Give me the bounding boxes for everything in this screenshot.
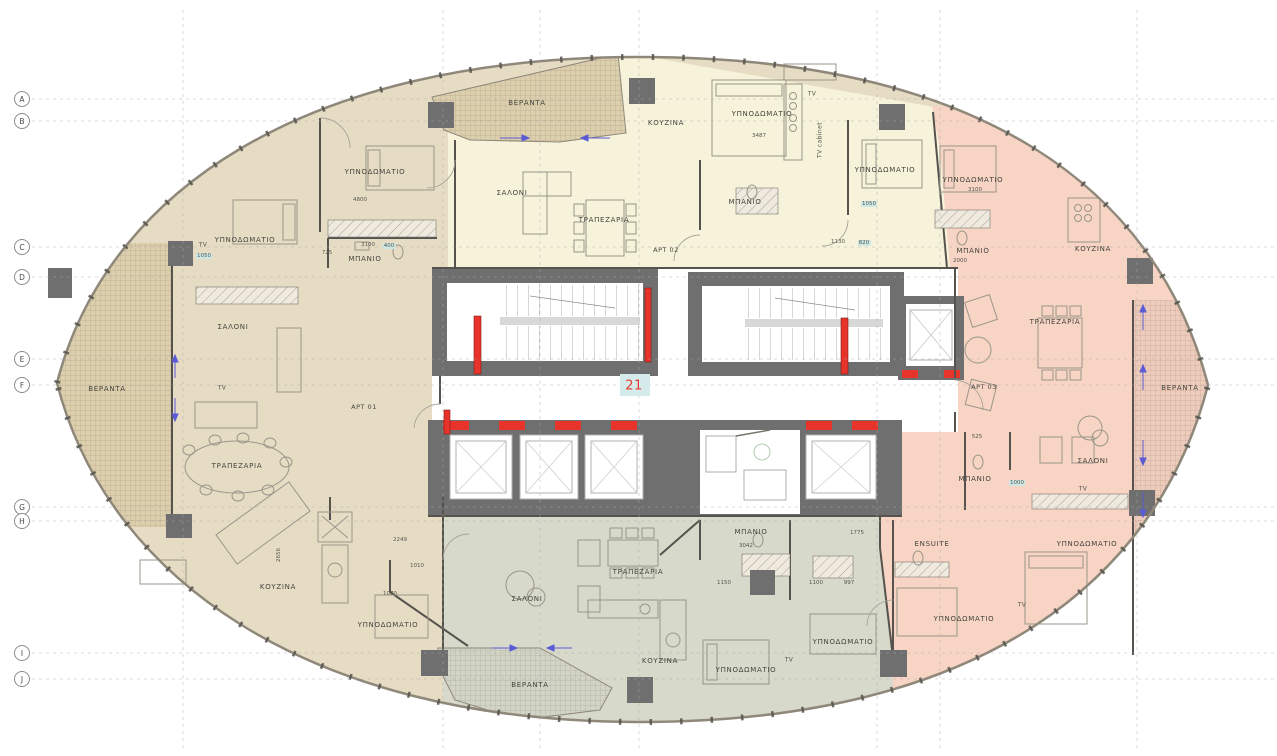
stair-2-lower-flight	[745, 328, 883, 360]
room-label-bedroom: ΥΠΝΟΔΩΜΑΤΙΟ	[345, 168, 406, 176]
room-label-dining: ΤΡΑΠΕΖΑΡΙΑ	[579, 216, 630, 224]
room-label-dining: ΤΡΑΠΕΖΑΡΙΑ	[1030, 318, 1081, 326]
room-label-dining: ΤΡΑΠΕΖΑΡΙΑ	[613, 568, 664, 576]
room-label-veranda: ΒΕΡΑΝΤΑ	[1161, 384, 1198, 392]
room-label-bath: ΜΠΑΝΙΟ	[958, 475, 991, 483]
central-core	[414, 268, 983, 516]
unit-label-apt03: APT 03	[971, 383, 997, 391]
room-label-veranda: ΒΕΡΑΝΤΑ	[508, 99, 545, 107]
tv-label: TV	[785, 657, 794, 664]
dim-label: 1775	[850, 530, 864, 536]
dim-label: 2000	[953, 258, 967, 264]
stair-1-upper-flight	[500, 285, 640, 316]
floor-number: 21	[625, 379, 643, 394]
grid-row-label: I	[21, 649, 23, 658]
room-label-bedroom: ΥΠΝΟΔΩΜΑΤΙΟ	[934, 615, 995, 623]
room-label-dining: ΤΡΑΠΕΖΑΡΙΑ	[212, 462, 263, 470]
dim-label: 1050	[196, 253, 212, 259]
grid-row-label: E	[20, 355, 25, 364]
dim-label: 2249	[393, 537, 407, 543]
room-label-bedroom: ΥΠΝΟΔΩΜΑΤΙΟ	[716, 666, 777, 674]
dim-label: 1100	[809, 580, 823, 586]
grid-row-label: D	[19, 273, 25, 282]
room-label-bedroom: ΥΠΝΟΔΩΜΑΤΙΟ	[358, 621, 419, 629]
grid-row-label: F	[20, 381, 24, 390]
grid-row-label: A	[19, 95, 25, 104]
room-label-living: ΣΑΛΟΝΙ	[511, 595, 542, 603]
dim-label: 725	[322, 250, 333, 256]
unit-label-apt02: APT 02	[653, 246, 679, 254]
room-label-ensuite: ENSUITE	[915, 540, 950, 548]
grid-row-label: C	[19, 243, 24, 252]
dim-label: 3100	[361, 242, 375, 248]
room-label-bedroom: ΥΠΝΟΔΩΜΑΤΙΟ	[1057, 540, 1118, 548]
dim-label: 3100	[968, 187, 982, 193]
dim-label: 400	[383, 243, 396, 249]
dim-label: 997	[844, 580, 855, 586]
unit-label-apt01: APT 01	[351, 403, 377, 411]
room-label-living: ΣΑΛΟΝΙ	[217, 323, 248, 331]
room-label-veranda: ΒΕΡΑΝΤΑ	[511, 681, 548, 689]
room-label-kitchen: ΚΟΥΖΙΝΑ	[1075, 245, 1111, 253]
dim-label: 3042	[739, 543, 753, 549]
tv-cabinet-label: TV cabinet	[817, 122, 824, 158]
room-label-living: ΣΑΛΟΝΙ	[1077, 457, 1108, 465]
dim-label: 3487	[752, 133, 766, 139]
room-label-bedroom: ΥΠΝΟΔΩΜΑΤΙΟ	[813, 638, 874, 646]
room-label-bedroom: ΥΠΝΟΔΩΜΑΤΙΟ	[215, 236, 276, 244]
veranda-right	[1133, 300, 1217, 660]
room-label-kitchen: ΚΟΥΖΙΝΑ	[648, 119, 684, 127]
tv-label: TV	[1018, 602, 1027, 609]
room-label-bedroom: ΥΠΝΟΔΩΜΑΤΙΟ	[732, 110, 793, 118]
grid-row-label: H	[19, 517, 25, 526]
grid-row-label: B	[19, 117, 24, 126]
tv-label: TV	[199, 242, 208, 249]
room-label-living: ΣΑΛΟΝΙ	[496, 189, 527, 197]
room-label-kitchen: ΚΟΥΖΙΝΑ	[642, 657, 678, 665]
dim-label: 525	[972, 434, 983, 440]
dim-label: 1050	[861, 201, 877, 207]
floor-plan-canvas: A B C D E F G H I J 21 ΒΕΡΑΝΤΑ ΒΕΡΑΝΤΑ Β…	[0, 0, 1277, 756]
room-label-bath: ΜΠΑΝΙΟ	[728, 198, 761, 206]
dim-label: 1010	[410, 563, 424, 569]
room-label-bath: ΜΠΑΝΙΟ	[348, 255, 381, 263]
dim-label: 2656	[276, 548, 282, 562]
room-label-bath: ΜΠΑΝΙΟ	[734, 528, 767, 536]
stair-1-lower-flight	[500, 326, 640, 360]
room-label-bath: ΜΠΑΝΙΟ	[956, 247, 989, 255]
tv-label: TV	[1079, 486, 1088, 493]
grid-row-label: G	[19, 503, 25, 512]
grid-row-label: J	[20, 675, 23, 684]
dim-label: 1070	[383, 591, 397, 597]
room-label-veranda: ΒΕΡΑΝΤΑ	[88, 385, 125, 393]
tv-label: TV	[218, 385, 227, 392]
dim-label: 4800	[353, 197, 367, 203]
room-label-bedroom: ΥΠΝΟΔΩΜΑΤΙΟ	[855, 166, 916, 174]
grid-row-bubbles: A B C D E F G H I J	[15, 92, 30, 687]
stair-2-upper-flight	[745, 288, 883, 318]
room-label-kitchen: ΚΟΥΖΙΝΑ	[260, 583, 296, 591]
dim-label: 1130	[831, 239, 845, 245]
dim-label: 1000	[1009, 480, 1025, 486]
dim-label: 820	[858, 240, 871, 246]
room-label-bedroom: ΥΠΝΟΔΩΜΑΤΙΟ	[943, 176, 1004, 184]
tv-label: TV	[808, 91, 817, 98]
dim-label: 1150	[717, 580, 731, 586]
